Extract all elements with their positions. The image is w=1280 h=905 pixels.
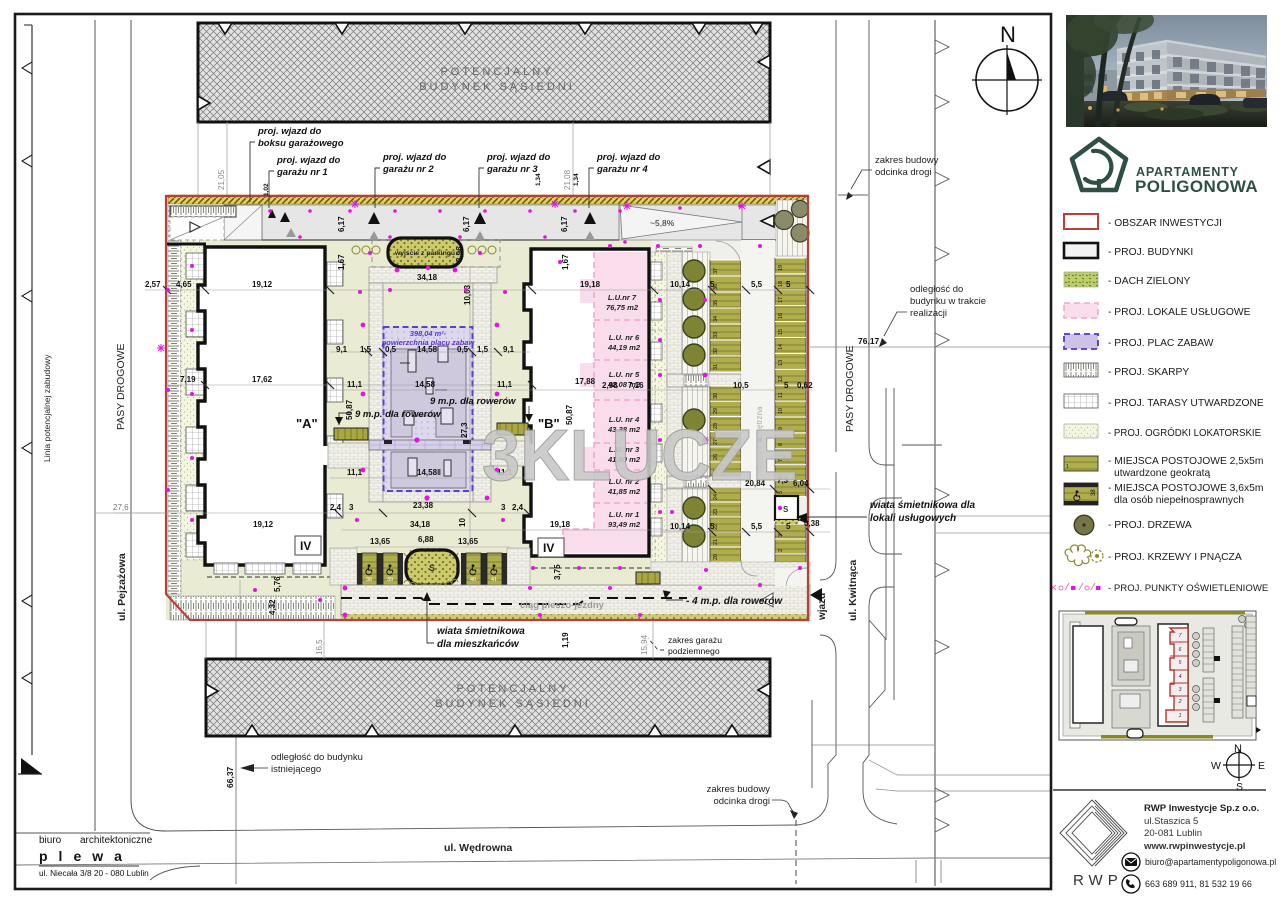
svg-text:3: 3 [349, 503, 354, 512]
svg-text:20: 20 [713, 554, 719, 560]
svg-text:L.U. nr 6: L.U. nr 6 [609, 333, 640, 342]
svg-text:16,5: 16,5 [315, 639, 324, 655]
svg-text:21,05: 21,05 [217, 169, 226, 190]
svg-text:13,65: 13,65 [458, 537, 479, 546]
svg-text:L.U. nr 1: L.U. nr 1 [609, 510, 639, 519]
svg-text:- MIEJSCA POSTOJOWE 3,6x5m: - MIEJSCA POSTOJOWE 3,6x5m [1108, 483, 1263, 494]
svg-text:5: 5 [786, 522, 791, 531]
svg-text:10,5: 10,5 [733, 381, 749, 390]
svg-text:plewa: plewa [39, 848, 133, 864]
svg-text:3,96: 3,96 [455, 246, 464, 262]
svg-text:30: 30 [713, 393, 719, 399]
svg-text:podziemnego: podziemnego [668, 646, 720, 656]
svg-text:21,08: 21,08 [563, 169, 572, 190]
svg-text:2: 2 [1177, 699, 1181, 705]
svg-text:14,58: 14,58 [415, 380, 436, 389]
svg-text:19,18: 19,18 [550, 520, 571, 529]
svg-text:10,14: 10,14 [670, 522, 691, 531]
svg-text:10: 10 [778, 408, 784, 414]
svg-text:2,57: 2,57 [145, 280, 161, 289]
svg-text:zakres budowy: zakres budowy [707, 784, 771, 795]
svg-text:- PROJ. PUNKTY OŚWIETLENIOWE: - PROJ. PUNKTY OŚWIETLENIOWE [1108, 582, 1268, 594]
svg-text:19,12: 19,12 [252, 280, 273, 289]
svg-text:- DACH ZIELONY: - DACH ZIELONY [1108, 276, 1191, 287]
svg-text:ciąg pieszo-jezdny: ciąg pieszo-jezdny [520, 600, 605, 611]
svg-text:11,1: 11,1 [347, 468, 363, 477]
svg-text:- PROJ. PLAC ZABAW: - PROJ. PLAC ZABAW [1108, 338, 1214, 349]
svg-text:6,17: 6,17 [337, 216, 346, 232]
svg-text:50,87: 50,87 [345, 399, 354, 420]
svg-text:garażu nr 2: garażu nr 2 [382, 164, 434, 175]
svg-text:20-081 Lublin: 20-081 Lublin [1144, 828, 1202, 839]
svg-text:44,19 m2: 44,19 m2 [607, 343, 641, 352]
svg-text:1,5: 1,5 [360, 345, 372, 354]
svg-text:34: 34 [713, 316, 719, 322]
svg-text:18: 18 [778, 281, 784, 287]
svg-text:PASY DROGOWE: PASY DROGOWE [115, 343, 127, 430]
svg-text:9,1: 9,1 [503, 345, 515, 354]
svg-text:5,76: 5,76 [273, 576, 282, 592]
svg-text:11,1: 11,1 [347, 380, 363, 389]
svg-text:5,5: 5,5 [751, 522, 763, 531]
svg-text:garażu nr 4: garażu nr 4 [596, 164, 648, 175]
svg-text:- PROJ. KRZEWY I PNĄCZA: - PROJ. KRZEWY I PNĄCZA [1108, 552, 1242, 563]
svg-text:11: 11 [778, 392, 784, 398]
svg-text:2: 2 [778, 549, 784, 552]
svg-text:10,03: 10,03 [463, 284, 472, 305]
svg-text:1,5: 1,5 [477, 345, 489, 354]
svg-text:2,4: 2,4 [330, 503, 342, 512]
svg-text:garażu nr 3: garażu nr 3 [486, 164, 538, 175]
svg-text:1,67: 1,67 [337, 254, 346, 270]
svg-text:14,58‖: 14,58‖ [417, 468, 441, 477]
svg-text:BUDYNEK SĄSIEDNI: BUDYNEK SĄSIEDNI [435, 698, 591, 710]
svg-text:66,37: 66,37 [225, 766, 235, 788]
svg-text:5: 5 [786, 280, 791, 289]
svg-text:15: 15 [778, 329, 784, 335]
svg-text:Linia potencjalnej zabudowy: Linia potencjalnej zabudowy [42, 354, 52, 462]
svg-text:1: 1 [1178, 713, 1181, 719]
svg-text:- PROJ. DRZEWA: - PROJ. DRZEWA [1108, 520, 1192, 531]
svg-text:- PROJ. OGRÓDKI LOKATORSKIE: - PROJ. OGRÓDKI LOKATORSKIE [1108, 428, 1262, 439]
svg-text:13: 13 [778, 360, 784, 366]
svg-text:2,98: 2,98 [602, 381, 618, 390]
svg-text:POTENCJALNY: POTENCJALNY [456, 683, 569, 695]
svg-text:31: 31 [713, 364, 719, 370]
svg-text:27,3: 27,3 [460, 422, 469, 438]
svg-text:wiata śmietnikowa dla: wiata śmietnikowa dla [870, 500, 975, 511]
svg-text:663 689 911, 81 532 19 66: 663 689 911, 81 532 19 66 [1145, 879, 1252, 889]
svg-text:9,1: 9,1 [336, 345, 348, 354]
svg-text:proj. wjazd do: proj. wjazd do [382, 152, 447, 163]
svg-text:ul. Pejzażowa: ul. Pejzażowa [116, 553, 128, 621]
svg-text:17: 17 [778, 297, 784, 303]
svg-text:proj. wjazd do: proj. wjazd do [486, 152, 551, 163]
svg-text:17,62: 17,62 [252, 375, 273, 384]
svg-text:37: 37 [713, 268, 719, 274]
svg-text:17,88: 17,88 [575, 377, 596, 386]
svg-text:L.U. nr 5: L.U. nr 5 [609, 370, 640, 379]
svg-text:odcinka drogi: odcinka drogi [713, 796, 770, 807]
svg-text:- PROJ. LOKALE USŁUGOWE: - PROJ. LOKALE USŁUGOWE [1108, 307, 1251, 318]
svg-text:biuro: biuro [39, 835, 62, 846]
svg-text:ul.Staszica 5: ul.Staszica 5 [1144, 816, 1198, 827]
svg-text:27,6: 27,6 [113, 503, 129, 512]
svg-text:1,34: 1,34 [573, 173, 580, 186]
svg-text:proj. wjazd do: proj. wjazd do [276, 155, 341, 166]
svg-text:23: 23 [713, 509, 719, 515]
svg-text:6,17: 6,17 [560, 216, 569, 232]
svg-text:38: 38 [366, 577, 372, 583]
svg-text:3KLUCZE: 3KLUCZE [482, 416, 798, 496]
svg-text:32: 32 [713, 348, 719, 354]
svg-text:11,1: 11,1 [497, 380, 513, 389]
svg-text:34,18: 34,18 [417, 273, 438, 282]
svg-text:93,49 m2: 93,49 m2 [608, 520, 641, 529]
svg-text:- MIEJSCA POSTOJOWE 2,5x5m: - MIEJSCA POSTOJOWE 2,5x5m [1108, 456, 1263, 467]
svg-text:- PROJ. BUDYNKI: - PROJ. BUDYNKI [1108, 247, 1193, 258]
svg-text:ul. Niecała 3/8 20 - 080 Lubl: ul. Niecała 3/8 20 - 080 Lublin [39, 868, 149, 878]
svg-text:1,67: 1,67 [561, 254, 570, 270]
svg-text:wyjście z parkingu: wyjście z parkingu [394, 250, 455, 257]
svg-text:34,18: 34,18 [410, 520, 431, 529]
svg-text:19: 19 [778, 265, 784, 271]
svg-text:19,18: 19,18 [580, 280, 601, 289]
svg-text:19,12: 19,12 [253, 520, 274, 529]
svg-text:istniejącego: istniejącego [271, 764, 321, 775]
svg-text:7,19: 7,19 [180, 375, 196, 384]
svg-text:lokali usługowych: lokali usługowych [870, 513, 956, 524]
svg-text:9 m.p. dla rowerów: 9 m.p. dla rowerów [355, 409, 441, 420]
svg-text:5: 5 [784, 381, 789, 390]
svg-text:zakres budowy: zakres budowy [875, 155, 939, 166]
svg-text:33: 33 [713, 332, 719, 338]
svg-text:23,38: 23,38 [413, 501, 434, 510]
svg-text:POTENCJALNY: POTENCJALNY [440, 66, 553, 78]
svg-text:zakres garażu: zakres garażu [668, 635, 722, 645]
svg-text:6,17: 6,17 [462, 216, 471, 232]
svg-text:biuro@apartamentypoligonowa.pl: biuro@apartamentypoligonowa.pl [1145, 857, 1276, 867]
svg-text:- PROJ. TARASY UTWARDZONE: - PROJ. TARASY UTWARDZONE [1108, 398, 1264, 409]
svg-text:wiata śmietnikowa: wiata śmietnikowa [437, 626, 525, 637]
svg-text:14,58: 14,58 [417, 345, 438, 354]
svg-text:utwardzone geokratą: utwardzone geokratą [1114, 468, 1210, 479]
svg-text:E: E [1258, 760, 1265, 772]
svg-text:S: S [783, 505, 789, 514]
svg-text:"A": "A" [296, 416, 318, 431]
svg-text:7,16: 7,16 [628, 381, 644, 390]
svg-text:29: 29 [713, 408, 719, 414]
svg-text:10: 10 [458, 518, 467, 527]
svg-text:realizacji: realizacji [910, 308, 947, 319]
svg-text:boksu garażowego: boksu garażowego [258, 138, 344, 149]
svg-text:14: 14 [778, 344, 784, 350]
svg-text:3: 3 [501, 503, 506, 512]
svg-text:S: S [429, 563, 435, 573]
svg-text:ul. Wędrowna: ul. Wędrowna [444, 842, 512, 854]
svg-text:76,75 m2: 76,75 m2 [606, 303, 639, 312]
svg-text:- PROJ. SKARPY: - PROJ. SKARPY [1108, 367, 1189, 378]
svg-text:dla osób niepełnosprawnych: dla osób niepełnosprawnych [1114, 495, 1244, 506]
svg-text:garażu nr 1: garażu nr 1 [276, 167, 328, 178]
svg-text:- 4 m.p. dla rowerów: - 4 m.p. dla rowerów [686, 596, 783, 607]
svg-text:IV: IV [300, 539, 311, 553]
svg-text:4,65: 4,65 [176, 280, 192, 289]
svg-text:76,17: 76,17 [858, 336, 880, 346]
svg-text:S: S [1236, 781, 1243, 793]
svg-text:40: 40 [470, 577, 476, 583]
svg-text:10,14: 10,14 [670, 280, 691, 289]
svg-text:1,19: 1,19 [561, 632, 570, 648]
svg-text:BUDYNEK SĄSIEDNI: BUDYNEK SĄSIEDNI [419, 81, 575, 93]
svg-text:16: 16 [778, 313, 784, 319]
svg-text:dla mieszkańców: dla mieszkańców [437, 639, 520, 650]
svg-text:4,32: 4,32 [268, 599, 277, 615]
svg-text:2,4: 2,4 [512, 503, 524, 512]
svg-text:13,65: 13,65 [370, 537, 391, 546]
svg-text:POLIGONOWA: POLIGONOWA [1135, 177, 1258, 196]
svg-text:6,88: 6,88 [418, 535, 434, 544]
svg-text:15,94: 15,94 [640, 634, 649, 655]
svg-text:odcinka drogi: odcinka drogi [875, 167, 932, 178]
svg-text:www.rwpinwestycje.pl: www.rwpinwestycje.pl [1143, 841, 1245, 852]
svg-text:budynku w trakcie: budynku w trakcie [910, 296, 986, 307]
svg-text:odległość do budynku: odległość do budynku [271, 752, 363, 763]
svg-text:5: 5 [710, 522, 715, 531]
svg-text:1: 1 [1066, 464, 1069, 470]
svg-text:architektoniczne: architektoniczne [80, 835, 153, 846]
svg-text:~5,8%: ~5,8% [650, 218, 675, 228]
svg-text:41: 41 [491, 577, 497, 583]
svg-text:RWP: RWP [1073, 872, 1123, 889]
svg-text:odległość do: odległość do [910, 284, 963, 295]
svg-text:4: 4 [1178, 674, 1181, 680]
svg-text:0,62: 0,62 [797, 381, 813, 390]
svg-text:398,04 m²-: 398,04 m²- [410, 329, 447, 338]
svg-text:proj. wjazd do: proj. wjazd do [596, 152, 661, 163]
svg-text:9 m.p. dla rowerów: 9 m.p. dla rowerów [430, 396, 516, 407]
svg-text:0,5: 0,5 [457, 345, 469, 354]
svg-text:21: 21 [713, 539, 719, 545]
svg-text:IV: IV [543, 541, 554, 555]
svg-text:- OBSZAR INWESTYCJI: - OBSZAR INWESTYCJI [1108, 218, 1222, 229]
svg-text:39: 39 [387, 577, 393, 583]
svg-text:5: 5 [710, 280, 715, 289]
svg-text:L.U.nr 7: L.U.nr 7 [608, 293, 637, 302]
svg-text:38: 38 [1091, 489, 1097, 496]
svg-text:3,75: 3,75 [553, 564, 562, 580]
svg-text:W: W [1211, 760, 1221, 772]
svg-text:proj. wjazd do: proj. wjazd do [257, 126, 322, 137]
svg-text:ul. Kwitnąca: ul. Kwitnąca [847, 560, 859, 621]
svg-text:35: 35 [713, 300, 719, 306]
svg-text:PASY DROGOWE: PASY DROGOWE [844, 345, 856, 432]
svg-text:5,5: 5,5 [751, 280, 763, 289]
svg-text:RWP Inwestycje Sp.z o.o.: RWP Inwestycje Sp.z o.o. [1144, 803, 1259, 814]
svg-text:0,5: 0,5 [385, 345, 397, 354]
svg-text:N: N [1000, 22, 1016, 47]
